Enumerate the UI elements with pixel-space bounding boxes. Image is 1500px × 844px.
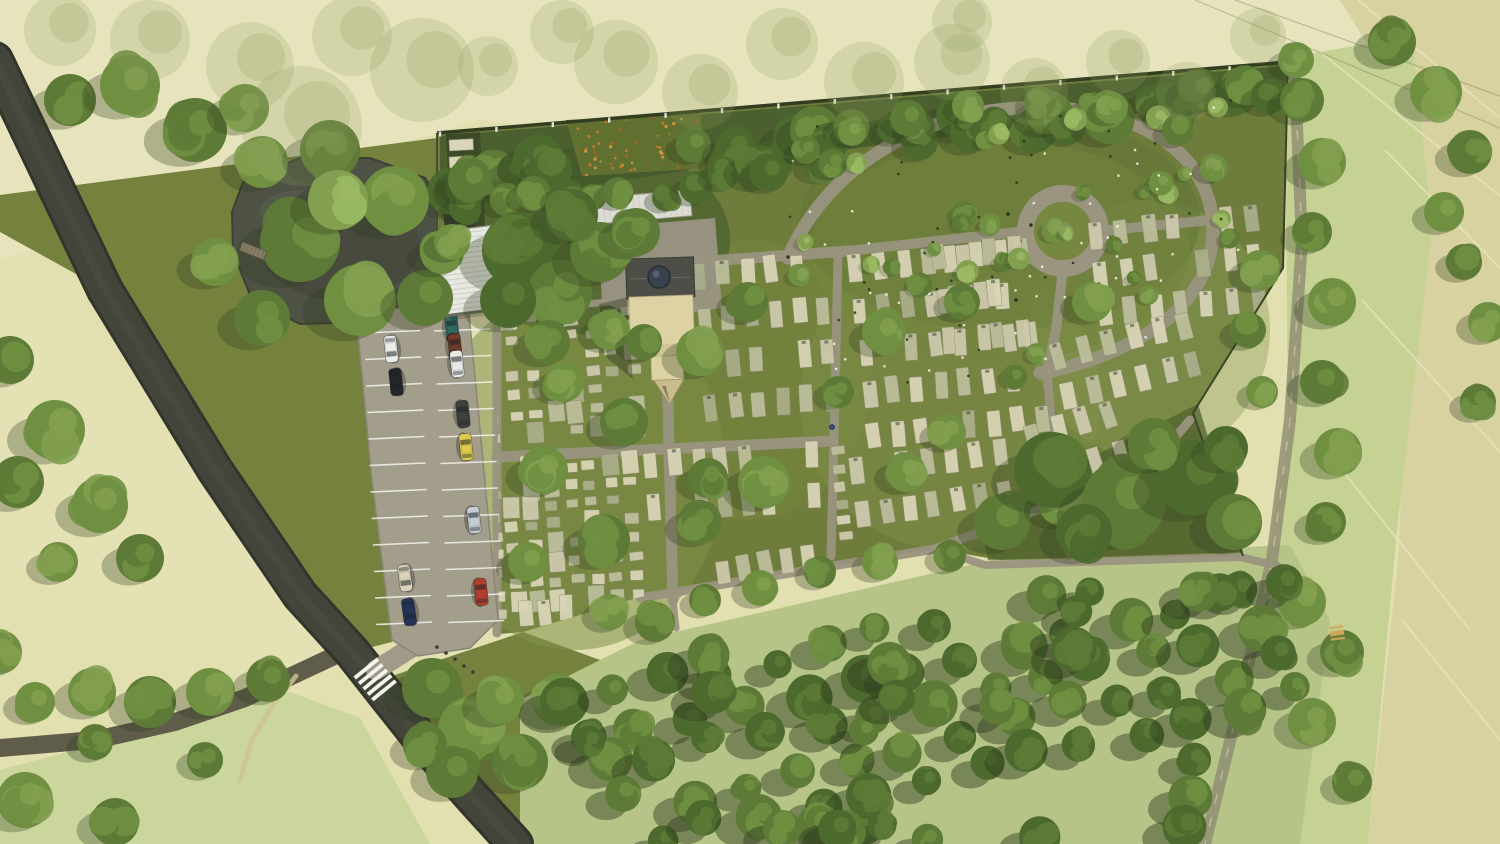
aerial-site-plan [0, 0, 1500, 844]
site-plan-svg [0, 0, 1500, 844]
picnic-table [1329, 625, 1345, 641]
